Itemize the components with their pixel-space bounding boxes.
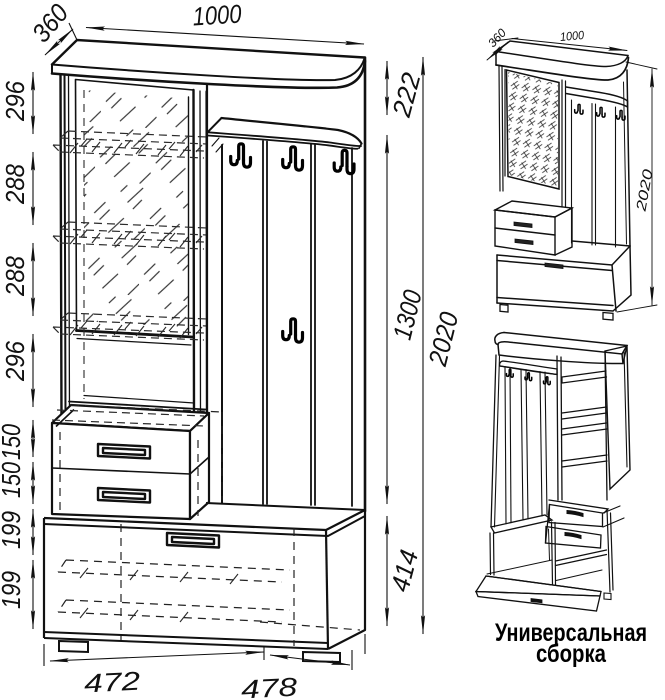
svg-text:150: 150 [0,462,26,498]
svg-text:296: 296 [0,341,30,382]
svg-text:288: 288 [0,164,30,205]
svg-text:сборка: сборка [536,640,607,668]
svg-text:288: 288 [0,256,30,297]
svg-text:296: 296 [0,81,30,122]
svg-text:1000: 1000 [559,28,584,44]
svg-text:150: 150 [0,424,26,460]
svg-text:478: 478 [240,672,298,700]
svg-text:1000: 1000 [192,0,243,31]
svg-text:199: 199 [0,511,26,549]
svg-text:472: 472 [83,666,141,699]
svg-text:199: 199 [0,571,26,609]
